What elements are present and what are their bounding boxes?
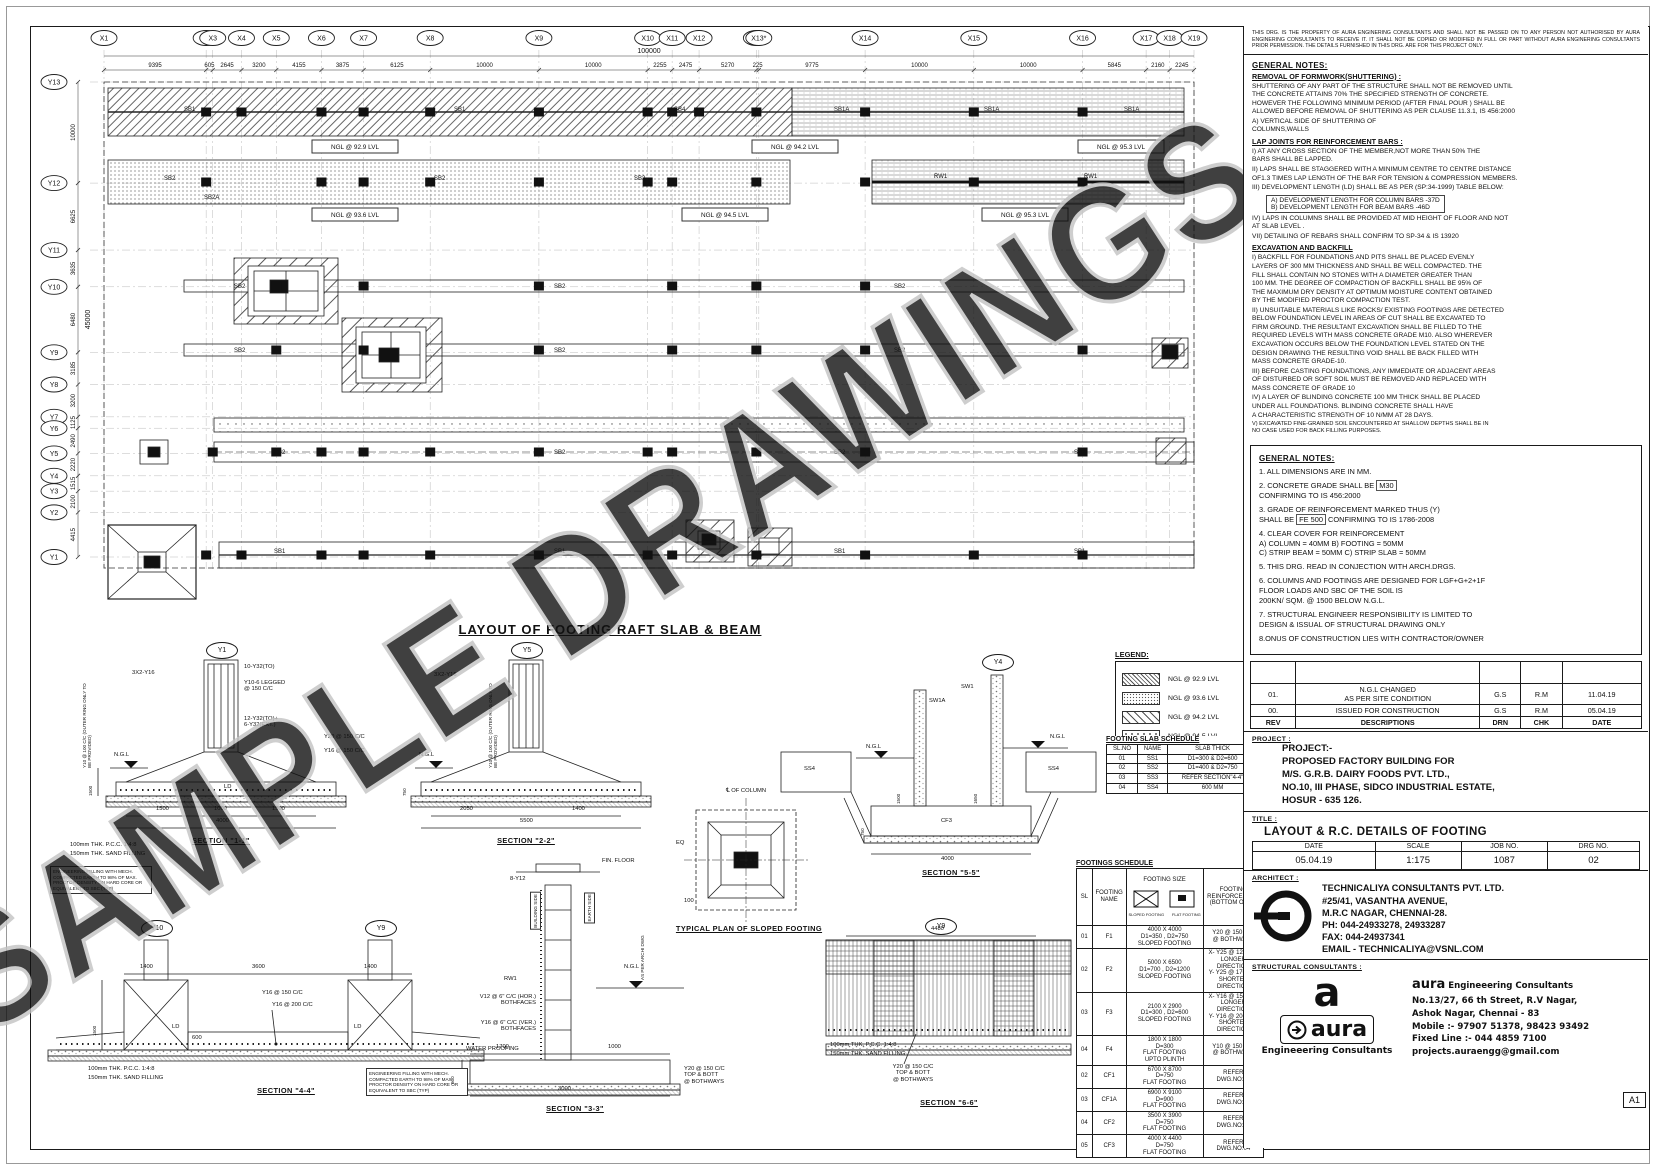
- title-meta-table: DATESCALE JOB NO.DRG NO. 05.04.19 1:175 …: [1252, 841, 1640, 870]
- project-block: PROJECT : PROJECT:- PROPOSED FACTORY BUI…: [1244, 732, 1648, 812]
- svg-text:SB1A: SB1A: [984, 107, 999, 113]
- rebar-annotation: Y10 @ 100 C/C (OUTER RING ONLY TO BE PRO…: [82, 676, 92, 768]
- revision-block: 01.N.G.L CHANGED AS PER SITE CONDITION G…: [1244, 659, 1648, 732]
- rebar-annotation: 3X2-Y16: [434, 672, 457, 678]
- date-value: 05.04.19: [1253, 852, 1376, 870]
- dimension: LD: [224, 784, 231, 790]
- svg-text:SB2: SB2: [234, 348, 246, 354]
- section-label: SECTION "3-3": [530, 1104, 620, 1113]
- dimension: 5500: [520, 818, 533, 824]
- note-item: 3. GRADE OF REINFORCEMENT MARKED THUS (Y…: [1259, 505, 1633, 525]
- svg-text:Y11: Y11: [48, 248, 60, 255]
- project-description: PROJECT:- PROPOSED FACTORY BUILDING FOR …: [1252, 743, 1640, 807]
- section-label: SECTION "1-1": [176, 836, 266, 845]
- svg-text:605: 605: [204, 63, 215, 69]
- svg-text:2475: 2475: [679, 63, 693, 69]
- dimension: 1650: [973, 756, 978, 804]
- svg-text:10000: 10000: [585, 63, 602, 69]
- svg-text:10000: 10000: [71, 124, 77, 141]
- dimension: 3000: [558, 1086, 571, 1092]
- strap-tag: SS4: [804, 766, 815, 772]
- section-label: SECTION "2-2": [481, 836, 571, 845]
- x-grid: 100000X19395X2605X32645X43200X54155X6387…: [91, 31, 1207, 73]
- dimension: 1500: [272, 806, 285, 812]
- table-row: [1251, 662, 1642, 684]
- engineering-fill-note: ENGINEERING FILLING WITH MECH. COMPACTED…: [50, 866, 152, 894]
- svg-text:SB2A: SB2A: [204, 195, 219, 201]
- rebar-annotation: Y20 @ 150 C/C TOP & BOTT @ BOTHWAYS: [878, 1064, 948, 1083]
- concrete-grade-value: M30: [1376, 480, 1396, 491]
- svg-text:SB1: SB1: [184, 107, 196, 113]
- pcc-note: 100mm THK. P.C.C. 1:4:8: [88, 1066, 154, 1072]
- svg-text:3185: 3185: [71, 361, 77, 375]
- rebar-annotation: Y16 @ 6" C/C (VER.) BOTHFACES: [444, 1020, 536, 1033]
- svg-text:2245: 2245: [1175, 63, 1189, 69]
- svg-text:10000: 10000: [476, 63, 493, 69]
- ngl-label: NGL @ 92.9 LVL: [331, 144, 379, 151]
- dimension: 600: [450, 1060, 455, 1084]
- svg-text:SB1: SB1: [554, 549, 566, 555]
- svg-text:SB1: SB1: [454, 107, 466, 113]
- svg-text:SB2: SB2: [164, 176, 176, 182]
- ngl-marker-label: N.G.L: [114, 752, 129, 758]
- svg-text:6625: 6625: [71, 209, 77, 223]
- svg-text:SB2: SB2: [434, 176, 446, 182]
- sheet-size-badge: A1: [1623, 1092, 1646, 1108]
- dimension: 4000: [941, 856, 954, 862]
- note-text: I) AT ANY CROSS SECTION OF THE MEMBER,NO…: [1252, 148, 1640, 165]
- wall-tag: RW1: [504, 976, 517, 982]
- note-text: III) BEFORE CASTING FOUNDATIONS, ANY IMM…: [1252, 368, 1640, 394]
- floor-label: FIN. FLOOR: [602, 858, 635, 864]
- dimension: 600: [192, 1035, 202, 1041]
- svg-text:X19: X19: [1188, 36, 1201, 43]
- svg-text:3875: 3875: [336, 63, 350, 69]
- rebar-annotation: Y16 @ 150 C/C: [324, 748, 365, 754]
- title-label: TITLE :: [1252, 816, 1640, 823]
- table-header-row: DATESCALE JOB NO.DRG NO.: [1253, 842, 1640, 852]
- svg-text:Y6: Y6: [50, 426, 59, 433]
- dimension: 1700: [496, 1044, 509, 1050]
- svg-text:SB1: SB1: [1074, 549, 1086, 555]
- svg-text:SB2: SB2: [894, 348, 906, 354]
- ngl-marker-label: N.G.L: [866, 744, 881, 750]
- architect-block: ARCHITECT : TECHNICALIYA CONSULTANTS PVT…: [1244, 871, 1648, 960]
- svg-text:SB2: SB2: [554, 348, 566, 354]
- svg-text:X5: X5: [272, 36, 281, 43]
- note-text: I) BACKFILL FOR FOUNDATIONS AND PITS SHA…: [1252, 254, 1640, 305]
- dimension: 1400: [364, 964, 377, 970]
- svg-text:X12: X12: [693, 36, 706, 43]
- svg-text:X9: X9: [535, 36, 544, 43]
- structural-consultants-label: STRUCTURAL CONSULTANTS :: [1252, 964, 1640, 971]
- svg-text:Y13: Y13: [48, 80, 61, 87]
- notes-heading: GENERAL NOTES:: [1259, 454, 1633, 463]
- ngl-label: NGL @ 93.6 LVL: [331, 212, 379, 219]
- dimension: LD: [172, 1024, 179, 1030]
- svg-text:4415: 4415: [71, 527, 77, 541]
- svg-text:2490: 2490: [71, 433, 77, 447]
- rebar-annotation: 8-Y12: [510, 876, 525, 882]
- svg-text:3200: 3200: [252, 63, 266, 69]
- note-text: VII) DETAILING OF REBARS SHALL CONFIRM T…: [1252, 233, 1640, 242]
- rebar-annotation: Y10-6 LEGGED @ 150 C/C: [244, 680, 285, 693]
- title-block: TITLE : LAYOUT & R.C. DETAILS OF FOOTING…: [1244, 812, 1648, 871]
- rebar-annotation: Y16 @ 150 C/C: [262, 990, 303, 996]
- svg-text:100000: 100000: [637, 48, 660, 55]
- ownership-disclaimer: THIS DRG. IS THE PROPERTY OF AURA ENGINE…: [1244, 26, 1648, 55]
- note-text: A) VERTICAL SIDE OF SHUTTERING OF COLUMN…: [1252, 118, 1640, 135]
- rebar-annotation: 10-Y32(TO): [244, 664, 275, 670]
- sand-note: 150mm THK. SAND FILLING: [70, 851, 145, 857]
- rebar-annotation: 12-Y32(TO)+ 6-Y32(EXT.): [244, 716, 278, 729]
- grid-bubble: Y5: [511, 642, 543, 659]
- ngl-marker-label: N.G.L: [1050, 734, 1065, 740]
- section-label: SECTION "6-6": [894, 1098, 1004, 1107]
- sand-note: 150mm THK. SAND FILLING: [830, 1051, 905, 1057]
- dimension: 1000: [608, 1044, 621, 1050]
- dimension: 4480: [931, 926, 944, 932]
- structural-consultants-block: STRUCTURAL CONSULTANTS : a aura Engineee…: [1244, 960, 1648, 1110]
- svg-text:SB2: SB2: [634, 176, 646, 182]
- svg-text:2100: 2100: [71, 494, 77, 508]
- dimension: 100: [684, 898, 694, 904]
- centerline-label: ℄ OF COLUMN: [708, 788, 784, 794]
- svg-text:Y9: Y9: [50, 350, 59, 357]
- development-length-box: A) DEVELOPMENT LENGTH FOR COLUMN BARS -3…: [1266, 195, 1445, 213]
- svg-text:X8: X8: [426, 36, 435, 43]
- excavation-heading: EXCAVATION AND BACKFILL: [1252, 243, 1640, 252]
- rebar-annotation: 3X2-Y16: [132, 670, 155, 676]
- title-block-panel: THIS DRG. IS THE PROPERTY OF AURA ENGINE…: [1243, 26, 1648, 1148]
- pcc-note: 100mm THK. P.C.C. 1:4:8: [830, 1042, 896, 1048]
- svg-text:3635: 3635: [71, 261, 77, 275]
- svg-text:9395: 9395: [148, 63, 162, 69]
- ngl-marker-label: N.G.L: [419, 752, 434, 758]
- formwork-heading: REMOVAL OF FORMWORK(SHUTTERING) :: [1252, 72, 1640, 81]
- svg-text:2220: 2220: [71, 457, 77, 471]
- note-text: SHUTTERING OF ANY PART OF THE STRUCTURE …: [1252, 83, 1640, 117]
- dimension: 1400: [140, 964, 153, 970]
- wall-tag: SW1A: [929, 698, 945, 704]
- svg-text:X7: X7: [359, 36, 368, 43]
- svg-text:X6: X6: [317, 36, 326, 43]
- svg-text:3200: 3200: [71, 393, 77, 407]
- ngl-label: NGL @ 94.5 LVL: [701, 212, 749, 219]
- plan-title: LAYOUT OF FOOTING RAFT SLAB & BEAM: [380, 622, 840, 637]
- svg-text:Y1: Y1: [50, 555, 59, 562]
- job-number: 1087: [1461, 852, 1548, 870]
- arrow-circle-icon: [1287, 1020, 1307, 1040]
- svg-text:SB2: SB2: [834, 450, 846, 456]
- svg-text:X4: X4: [237, 36, 246, 43]
- dimension: 1500: [88, 766, 93, 796]
- svg-text:X15: X15: [968, 36, 981, 43]
- y-grid: 45000Y1310000Y126625Y113635Y106480Y93185…: [41, 75, 92, 565]
- dimension: 1400: [572, 806, 585, 812]
- grid-bubble: Y1: [206, 642, 238, 659]
- note-text: IV) LAPS IN COLUMNS SHALL BE PROVIDED AT…: [1252, 215, 1640, 232]
- section-label: TYPICAL PLAN OF SLOPED FOOTING: [664, 924, 834, 933]
- dimension: EQ: [676, 840, 684, 846]
- svg-text:Y12: Y12: [48, 181, 61, 188]
- svg-text:SB4: SB4: [674, 107, 686, 113]
- ngl-label: NGL @ 95.3 LVL: [1097, 144, 1145, 151]
- archi-ref-note: AS PER ARCHI DWG: [640, 880, 645, 980]
- svg-text:10000: 10000: [911, 63, 928, 69]
- svg-text:SB1A: SB1A: [834, 107, 849, 113]
- svg-text:Y2: Y2: [50, 510, 59, 517]
- note-item: 2. CONCRETE GRADE SHALL BE M30 CONFIRMIN…: [1259, 481, 1633, 501]
- note-text: II) LAPS SHALL BE STAGGERED WITH A MINIM…: [1252, 166, 1640, 183]
- svg-text:SB2: SB2: [554, 284, 566, 290]
- drawing-sheet: 100000X19395X2605X32645X43200X54155X6387…: [0, 0, 1655, 1170]
- svg-text:X3: X3: [208, 36, 217, 43]
- consultant-contact: aura Engineeering Consultants No.13/27, …: [1412, 975, 1589, 1059]
- svg-text:10000: 10000: [1020, 63, 1037, 69]
- aura-logo: aura: [1280, 1015, 1374, 1044]
- svg-text:X13*: X13*: [751, 36, 766, 43]
- svg-text:X14: X14: [859, 36, 872, 43]
- rebar-annotation: Y10 @ 100 C/C (OUTER RING ONLY TO BE PRO…: [488, 676, 498, 768]
- dimension: 1000: [214, 806, 227, 812]
- grid-bubble: Y10: [141, 920, 173, 937]
- aura-caption: Engineeering Consultants: [1252, 1046, 1402, 1056]
- dimension: 750: [860, 808, 865, 836]
- earth-side-tag: EARTH SIDE: [584, 892, 595, 923]
- svg-text:6480: 6480: [71, 312, 77, 326]
- note-item: 8.ONUS OF CONSTRUCTION LIES WITH CONTRAC…: [1259, 634, 1633, 644]
- general-notes-block: GENERAL NOTES: REMOVAL OF FORMWORK(SHUTT…: [1244, 55, 1648, 441]
- svg-text:SB2: SB2: [274, 450, 286, 456]
- svg-text:SB1: SB1: [834, 549, 846, 555]
- dimension: 1500: [92, 992, 97, 1036]
- svg-text:9775: 9775: [805, 63, 819, 69]
- svg-text:SB2: SB2: [1074, 450, 1086, 456]
- waterproofing-note: WATER PROOFING: [466, 1046, 519, 1052]
- svg-text:1125: 1125: [71, 415, 77, 429]
- lap-joints-heading: LAP JOINTS FOR REINFORCEMENT BARS :: [1252, 137, 1640, 146]
- svg-text:Y10: Y10: [48, 284, 61, 291]
- svg-text:SB2: SB2: [234, 284, 246, 290]
- rebar-annotation: V12 @ 6" C/C (HOR.) BOTHFACES: [444, 994, 536, 1007]
- svg-text:SB2: SB2: [554, 450, 566, 456]
- table-row: 05.04.19 1:175 1087 02: [1253, 852, 1640, 870]
- grid-bubble: Y4: [982, 654, 1014, 671]
- strap-tag: SS4: [1048, 766, 1059, 772]
- svg-text:Y8: Y8: [50, 382, 59, 389]
- dimension: 1500: [896, 760, 901, 804]
- revision-row: 01.N.G.L CHANGED AS PER SITE CONDITION G…: [1251, 684, 1642, 705]
- dimension: 1500: [156, 806, 169, 812]
- project-label: PROJECT :: [1252, 736, 1640, 743]
- notes-heading: GENERAL NOTES:: [1252, 61, 1640, 70]
- svg-text:5270: 5270: [721, 63, 735, 69]
- numbered-general-notes: GENERAL NOTES: 1. ALL DIMENSIONS ARE IN …: [1250, 445, 1642, 656]
- revision-row: 00.ISSUED FOR CONSTRUCTION G.SR.M05.04.1…: [1251, 705, 1642, 717]
- dimension: 4000: [216, 818, 229, 824]
- footing-layout-plan: 100000X19395X2605X32645X43200X54155X6387…: [34, 22, 1239, 640]
- dimension: 2050: [460, 806, 473, 812]
- svg-text:X11: X11: [666, 36, 678, 43]
- svg-text:2645: 2645: [220, 63, 234, 69]
- drawing-title: LAYOUT & R.C. DETAILS OF FOOTING: [1252, 823, 1640, 841]
- ngl-marker-label: N.G.L: [624, 964, 639, 970]
- note-text: III) DEVELOPMENT LENGTH (LD) SHALL BE AS…: [1252, 184, 1640, 193]
- svg-text:Y3: Y3: [50, 489, 59, 496]
- svg-text:SB1A: SB1A: [1124, 107, 1139, 113]
- revision-table: 01.N.G.L CHANGED AS PER SITE CONDITION G…: [1250, 661, 1642, 729]
- svg-text:SB2: SB2: [894, 284, 906, 290]
- svg-text:2160: 2160: [1151, 63, 1165, 69]
- svg-text:225: 225: [753, 63, 764, 69]
- steel-grade-value: FE 500: [1296, 514, 1326, 525]
- architect-address: TECHNICALIYA CONSULTANTS PVT. LTD. #25/4…: [1322, 882, 1504, 955]
- svg-text:Y4: Y4: [50, 473, 59, 480]
- architect-label: ARCHITECT :: [1252, 875, 1640, 882]
- svg-text:Y5: Y5: [50, 451, 59, 458]
- note-text: IV) A LAYER OF BLINDING CONCRETE 100 MM …: [1252, 394, 1640, 420]
- note-item: 6. COLUMNS AND FOOTINGS ARE DESIGNED FOR…: [1259, 576, 1633, 606]
- note-item: 7. STRUCTURAL ENGINEER RESPONSIBILITY IS…: [1259, 610, 1633, 630]
- dimension: LD: [354, 1024, 361, 1030]
- svg-text:X17: X17: [1140, 36, 1153, 43]
- rebar-annotation: Y20 @ 150 C/C TOP & BOTT @ BOTHWAYS: [684, 1066, 725, 1085]
- technicaliya-logo: [1252, 882, 1314, 948]
- note-item: 1. ALL DIMENSIONS ARE IN MM.: [1259, 467, 1633, 477]
- svg-text:5845: 5845: [1108, 63, 1122, 69]
- pcc-note: 100mm THK. P.C.C. 1:4:8: [70, 842, 136, 848]
- svg-text:RW1: RW1: [934, 174, 948, 180]
- svg-text:X10: X10: [641, 36, 654, 43]
- svg-text:45000: 45000: [85, 310, 92, 330]
- grid-bubble: Y9: [365, 920, 397, 937]
- svg-text:RW1: RW1: [1084, 174, 1098, 180]
- section-label: SECTION "5-5": [906, 868, 996, 877]
- rebar-annotation: Y20 @ 150 C/C: [324, 734, 365, 740]
- revision-header-row: REVDESCRIPTIONS DRNCHKDATE: [1251, 717, 1642, 729]
- detail-sections: Y1 Y5 Y10 Y9 Y4 Y9 N.G.L 3X2-Y16 10-Y32(…: [36, 640, 1248, 1146]
- footing-tag: CF3: [941, 818, 952, 824]
- note-item: 5. THIS DRG. READ IN CONJECTION WITH ARC…: [1259, 562, 1633, 572]
- dimension: 750: [402, 766, 407, 796]
- wall-tag: SW1: [961, 684, 974, 690]
- svg-text:SB1: SB1: [274, 549, 286, 555]
- building-side-tag: BUILDING SIDE: [530, 892, 541, 930]
- ngl-label: NGL @ 94.2 LVL: [771, 144, 819, 151]
- ngl-label: NGL @ 95.3 LVL: [1001, 212, 1049, 219]
- note-item: 4. CLEAR COVER FOR REINFORCEMENT A) COLU…: [1259, 529, 1633, 559]
- svg-text:X16: X16: [1076, 36, 1089, 43]
- svg-text:6125: 6125: [390, 63, 404, 69]
- dimension: 3600: [252, 964, 265, 970]
- note-text: II) UNSUITABLE MATERIALS LIKE ROCKS/ EXI…: [1252, 307, 1640, 367]
- drawing-number: 02: [1548, 852, 1640, 870]
- aura-a-logo: a: [1252, 975, 1402, 1011]
- svg-text:1515: 1515: [71, 476, 77, 490]
- svg-text:2255: 2255: [653, 63, 667, 69]
- svg-text:4155: 4155: [292, 63, 306, 69]
- plan-strips: [104, 82, 1194, 599]
- scale-value: 1:175: [1375, 852, 1461, 870]
- note-text: V) EXCAVATED FINE-GRAINED SOIL ENCOUNTER…: [1252, 421, 1640, 436]
- svg-text:X1: X1: [100, 36, 109, 43]
- sand-note: 150mm THK. SAND FILLING: [88, 1075, 163, 1081]
- rebar-annotation: Y16 @ 200 C/C: [272, 1002, 313, 1008]
- svg-text:X18: X18: [1163, 36, 1176, 43]
- section-label: SECTION "4-4": [236, 1086, 336, 1095]
